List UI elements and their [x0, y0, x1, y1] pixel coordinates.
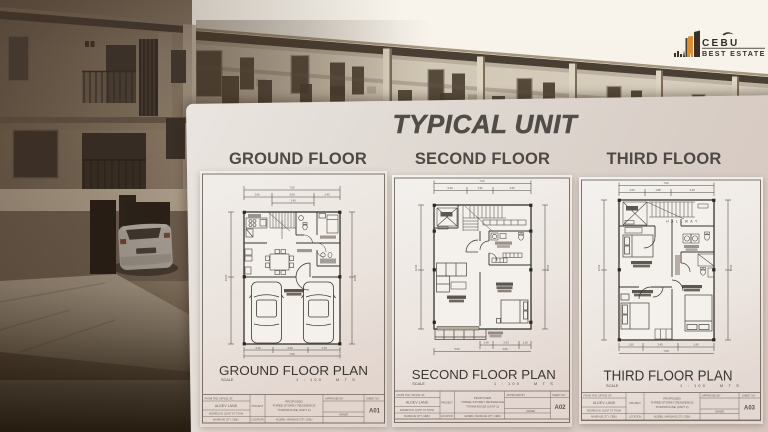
svg-text:SCALE: SCALE	[412, 382, 425, 386]
svg-text:TOWNHOUSE (UNIT 2): TOWNHOUSE (UNIT 2)	[277, 408, 310, 412]
svg-text:PROJECT: PROJECT	[629, 402, 641, 405]
svg-text:CEBU: CEBU	[702, 38, 740, 49]
svg-text:2.90: 2.90	[287, 346, 293, 350]
svg-text:12.00: 12.00	[546, 264, 550, 271]
svg-text:THIRD FLOOR PLAN: THIRD FLOOR PLAN	[604, 369, 733, 385]
svg-text:7.00: 7.00	[479, 179, 485, 183]
svg-text:HALLWAY: HALLWAY	[666, 220, 700, 224]
svg-text:FROM THE OFFICE OF: FROM THE OFFICE OF	[397, 393, 425, 397]
svg-text:ADDRESS B. QUIST ST. TISHA: ADDRESS B. QUIST ST. TISHA	[587, 409, 622, 412]
svg-text:PROJECT: PROJECT	[252, 405, 264, 408]
svg-text:FROM THE OFFICE OF: FROM THE OFFICE OF	[205, 396, 233, 400]
svg-text:5.00: 5.00	[454, 347, 460, 351]
svg-text:LOCATION: LOCATION	[629, 415, 642, 418]
svg-text:ADDRESS B. QUIST ST. TISHA: ADDRESS B. QUIST ST. TISHA	[209, 412, 244, 415]
svg-text:SCALE: SCALE	[221, 378, 234, 382]
svg-text:BEST ESTATE: BEST ESTATE	[702, 49, 766, 58]
svg-text:A01: A01	[369, 409, 381, 415]
svg-text:A02: A02	[554, 405, 566, 411]
svg-text:SHEET NO: SHEET NO	[742, 393, 755, 397]
svg-text:1.43: 1.43	[693, 343, 699, 347]
svg-text:7.00: 7.00	[663, 181, 669, 185]
svg-text:SHEET NO: SHEET NO	[552, 393, 565, 397]
svg-text:2.60: 2.60	[502, 347, 508, 351]
svg-text:FROM THE OFFICE OF: FROM THE OFFICE OF	[584, 393, 612, 397]
svg-text:12.00: 12.00	[597, 264, 601, 271]
svg-text:2.45: 2.45	[657, 343, 663, 347]
svg-text:2.43: 2.43	[503, 341, 509, 345]
svg-text:7.00: 7.00	[663, 349, 669, 353]
svg-text:1.50: 1.50	[628, 343, 634, 347]
svg-text:7.00: 7.00	[289, 186, 295, 190]
svg-text:LOCATION: LOCATION	[251, 418, 264, 421]
svg-text:2.40: 2.40	[447, 186, 453, 190]
svg-text:OWNER: OWNER	[526, 410, 535, 413]
svg-text:1.40: 1.40	[324, 193, 330, 197]
svg-text:ALDEBU, MANDAUE CITY, CEBU: ALDEBU, MANDAUE CITY, CEBU	[276, 418, 313, 421]
svg-text:1.40: 1.40	[483, 341, 489, 345]
svg-text:APPROVED BY: APPROVED BY	[507, 393, 526, 397]
svg-text:1 : 100 M T S: 1 : 100 M T S	[680, 384, 741, 388]
svg-text:1.88: 1.88	[655, 188, 661, 192]
svg-text:TOWNHOUSE (UNIT 2): TOWNHOUSE (UNIT 2)	[466, 404, 499, 408]
svg-text:PROJECT: PROJECT	[441, 402, 453, 405]
svg-text:13.00: 13.00	[353, 274, 357, 281]
svg-text:ADDRESS B. QUIST ST. TISHA: ADDRESS B. QUIST ST. TISHA	[400, 409, 435, 412]
svg-text:13.00: 13.00	[224, 274, 228, 281]
svg-text:12.00: 12.00	[729, 264, 733, 271]
svg-text:2.60: 2.60	[509, 186, 515, 190]
svg-text:LOCATION: LOCATION	[441, 415, 454, 418]
svg-text:1 : 100 M T S: 1 : 100 M T S	[494, 382, 555, 386]
svg-text:2.40: 2.40	[255, 346, 261, 350]
svg-text:2.63: 2.63	[629, 188, 635, 192]
svg-text:ALDEV LAND: ALDEV LAND	[406, 401, 429, 405]
svg-text:7.00: 7.00	[289, 352, 295, 356]
svg-text:ALDEBU, MANDAUE CITY, CEBU: ALDEBU, MANDAUE CITY, CEBU	[464, 415, 501, 418]
svg-text:1.70: 1.70	[321, 346, 327, 350]
svg-text:2.60: 2.60	[254, 193, 260, 197]
svg-text:ALDEV LAND: ALDEV LAND	[215, 404, 238, 408]
svg-text:SCALE: SCALE	[606, 384, 619, 388]
svg-text:SHEET NO: SHEET NO	[366, 396, 379, 400]
svg-text:MANDAUE CITY, CEBU: MANDAUE CITY, CEBU	[591, 416, 617, 419]
svg-text:ALDEBU, MANDAUE CITY, CEBU: ALDEBU, MANDAUE CITY, CEBU	[654, 415, 691, 418]
svg-text:1.40: 1.40	[290, 199, 296, 203]
svg-text:GROUND FLOOR PLAN: GROUND FLOOR PLAN	[219, 363, 368, 378]
svg-text:ALDEV LAND: ALDEV LAND	[593, 401, 616, 405]
svg-text:12.00: 12.00	[414, 264, 418, 271]
svg-text:OWNER: OWNER	[715, 411, 724, 414]
svg-text:A03: A03	[744, 406, 756, 412]
svg-text:SECOND FLOOR PLAN: SECOND FLOOR PLAN	[412, 367, 556, 382]
svg-text:MANDAUE CITY, CEBU: MANDAUE CITY, CEBU	[213, 419, 239, 422]
svg-text:1.18: 1.18	[522, 341, 528, 345]
svg-text:3.00: 3.00	[289, 193, 295, 197]
svg-text:APPROVED BY: APPROVED BY	[702, 393, 721, 397]
svg-text:2.49: 2.49	[689, 188, 695, 192]
svg-text:MANDAUE CITY, CEBU: MANDAUE CITY, CEBU	[404, 415, 430, 418]
svg-text:1.90: 1.90	[477, 186, 483, 190]
svg-text:OWNER: OWNER	[339, 414, 348, 417]
svg-text:APPROVED BY: APPROVED BY	[325, 396, 344, 400]
svg-text:TOWNHOUSE (UNIT 2): TOWNHOUSE (UNIT 2)	[655, 405, 688, 409]
svg-text:1 : 100 M T S: 1 : 100 M T S	[296, 378, 357, 382]
